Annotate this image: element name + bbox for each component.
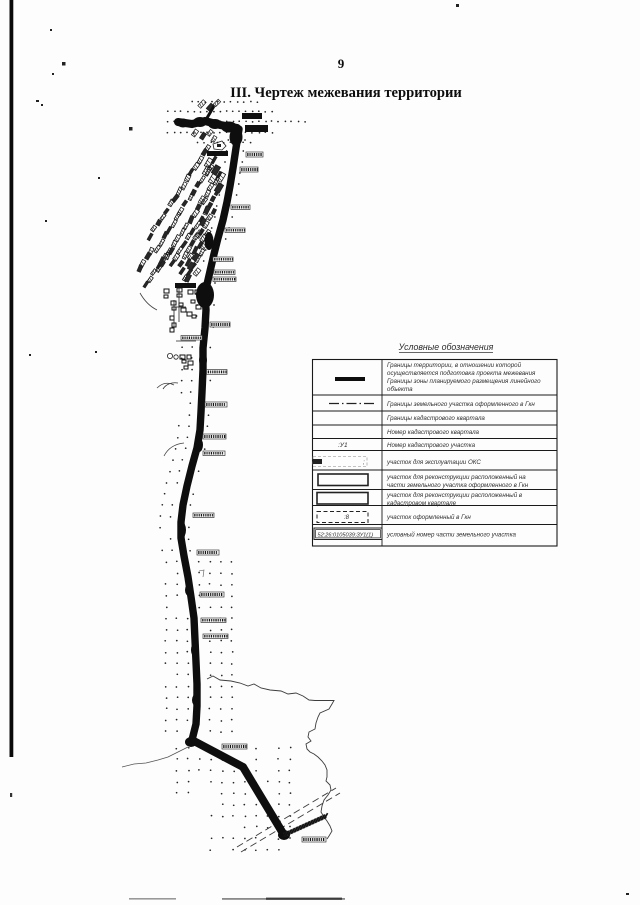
svg-text:9: 9 — [338, 56, 345, 71]
svg-text:участок для реконструкции расп: участок для реконструкции расположенный … — [386, 474, 526, 481]
svg-text:объекта: объекта — [387, 386, 413, 393]
svg-text:Номер кадастрового участка: Номер кадастрового участка — [387, 442, 476, 449]
svg-text:III. Чертеж межевания территор: III. Чертеж межевания территории — [230, 85, 462, 101]
svg-text:Номер кадастрового квартала: Номер кадастрового квартала — [387, 429, 480, 436]
svg-text:52:26:0105039:ЗУ1(1): 52:26:0105039:ЗУ1(1) — [318, 533, 374, 539]
svg-text:Границы зоны планируемого разм: Границы зоны планируемого размещения лин… — [387, 378, 541, 385]
svg-text:Границы земельного участка офо: Границы земельного участка оформленного … — [387, 401, 535, 408]
svg-text:части земельного участка оформ: части земельного участка оформленного в … — [387, 482, 529, 489]
svg-text:участок для эксплуатации ОКС: участок для эксплуатации ОКС — [386, 459, 481, 466]
svg-text::У1: :У1 — [338, 442, 348, 449]
svg-text:условный номер части земельног: условный номер части земельного участка — [386, 532, 517, 539]
svg-text:Границы кадастрового квартала: Границы кадастрового квартала — [387, 415, 485, 422]
svg-text:Границы территории, в отношени: Границы территории, в отношении которой — [387, 362, 522, 369]
svg-text:осуществляется подготовка прое: осуществляется подготовка проекта межева… — [387, 370, 536, 377]
svg-text:кадастровом квартале: кадастровом квартале — [387, 500, 457, 507]
svg-text:участок для реконструкции расп: участок для реконструкции расположенный … — [386, 492, 523, 499]
svg-text:участок оформленный в Гкн: участок оформленный в Гкн — [386, 514, 471, 521]
svg-text::8: :8 — [344, 515, 350, 521]
svg-text:Условные обозначения: Условные обозначения — [398, 342, 494, 352]
